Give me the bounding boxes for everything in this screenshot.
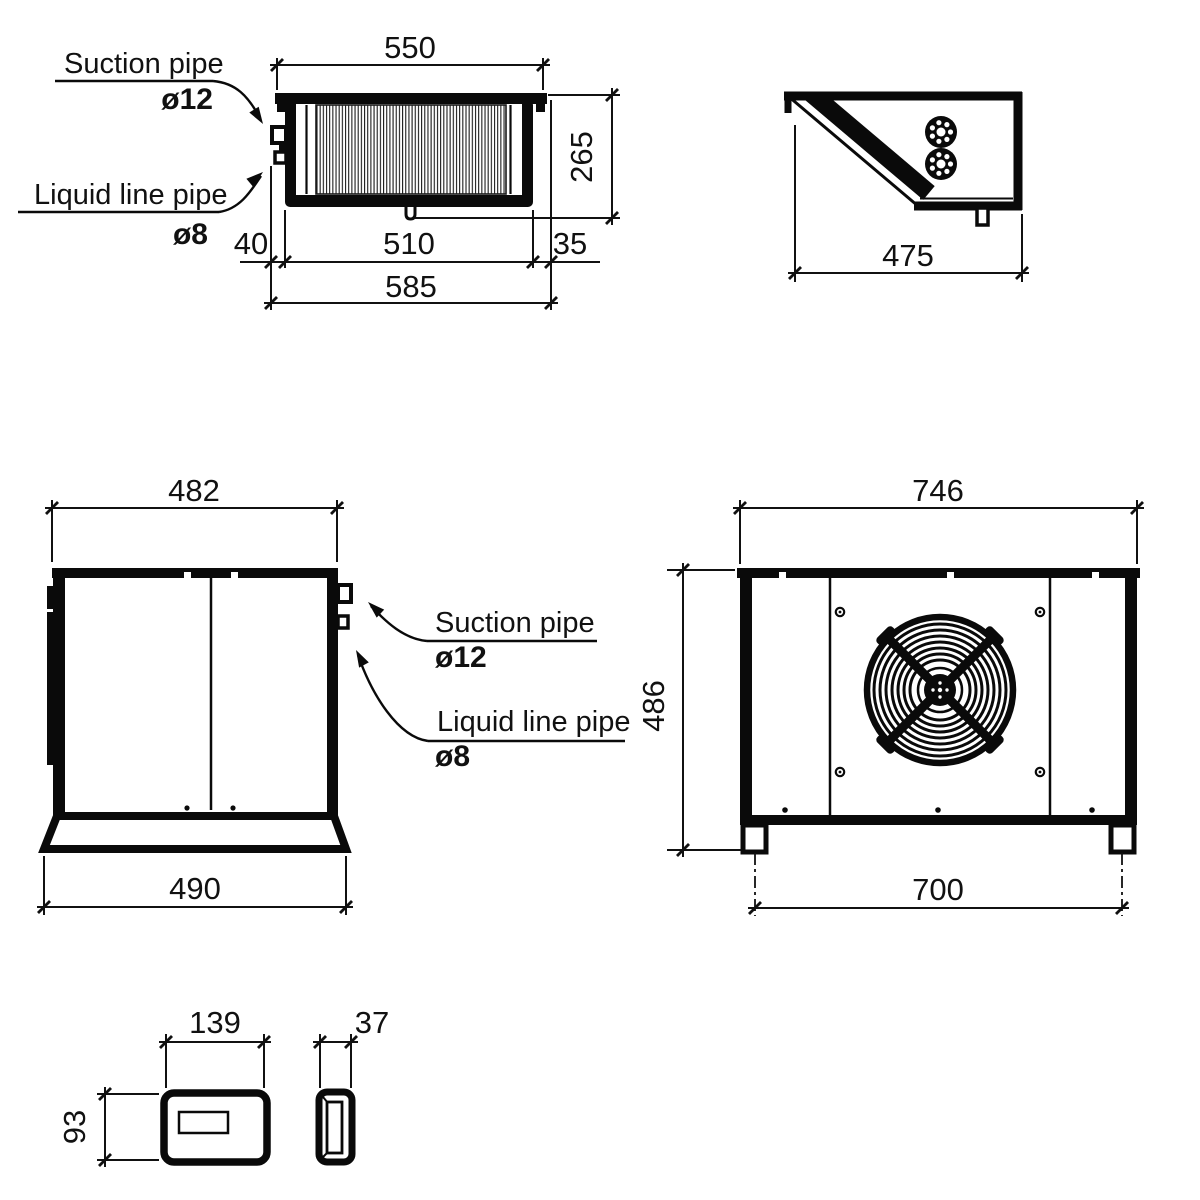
side-liquid-diameter: ø8	[435, 740, 470, 773]
dim-490-text: 490	[169, 871, 221, 906]
dim-front-746: 746	[733, 473, 1144, 564]
side-top-bar	[52, 568, 338, 578]
dim-40-text: 40	[234, 226, 268, 261]
dim-controller-93: 93	[57, 1087, 159, 1167]
condenser-fins	[316, 105, 506, 194]
side-suction-label: Suction pipe	[435, 607, 595, 639]
side-left-edge	[53, 578, 65, 818]
side-liquid-arrowhead-icon	[356, 650, 369, 668]
dim-37-text: 37	[355, 1005, 389, 1040]
side-suction-diameter: ø12	[435, 641, 487, 674]
dim-front-700: 700	[748, 853, 1129, 916]
liquid-arrowhead-icon	[246, 172, 263, 187]
liquid-pipe-stub	[275, 152, 286, 163]
side-screw-dot-1	[184, 805, 189, 810]
pipe-labels-top: Suction pipe ø12 Liquid line pipe ø8	[18, 48, 263, 251]
suction-pipe-label: Suction pipe	[64, 48, 224, 80]
dim-controller-37: 37	[313, 1005, 389, 1088]
side-right-edge	[327, 578, 338, 818]
controller-display-window	[179, 1112, 228, 1133]
dim-35-text: 35	[553, 226, 587, 261]
side-liquid-stub	[338, 616, 348, 628]
dim-746-text: 746	[912, 473, 964, 508]
dim-front-486: 486	[636, 563, 741, 857]
dim-486-text: 486	[636, 680, 671, 732]
side-suction-stub	[338, 585, 351, 602]
side-screw-dot-2	[230, 805, 235, 810]
front-top-bar	[737, 568, 1140, 578]
side-interior	[53, 578, 338, 815]
front-left-edge	[740, 578, 752, 825]
liquid-pipe-diameter: ø8	[173, 218, 208, 251]
drain-tab	[406, 207, 415, 219]
front-bar-notch-1	[779, 572, 786, 578]
dim-controller-139: 139	[159, 1005, 271, 1088]
controller-view: 139 37 93	[57, 1005, 389, 1167]
dim-475-text: 475	[882, 238, 934, 273]
dim-700-text: 700	[912, 872, 964, 907]
liquid-pipe-label: Liquid line pipe	[34, 179, 227, 211]
dim-585-text: 585	[385, 269, 437, 304]
dim-139-text: 139	[189, 1005, 241, 1040]
side-bar-notch-2	[231, 572, 238, 578]
angled-pipe-stub	[977, 208, 988, 225]
top-angled-view: 475	[784, 76, 1029, 282]
front-bottom-bar	[740, 815, 1137, 825]
front-bar-notch-3	[1092, 572, 1099, 578]
side-coil-strip-2	[47, 612, 53, 765]
front-foot-left	[743, 825, 766, 852]
controller-side-inner	[327, 1102, 342, 1153]
grommet-bottom-icon	[925, 148, 957, 180]
front-foot-right	[1111, 825, 1134, 852]
top-view-left-lip	[277, 104, 286, 112]
top-view-right-lip	[536, 104, 545, 112]
suction-pipe-diameter: ø12	[161, 83, 213, 116]
top-view: 550 265 40 510 35	[18, 30, 620, 310]
dim-265-text: 265	[564, 131, 599, 183]
grommet-top-icon	[925, 116, 957, 148]
side-coil-strip-1	[47, 586, 53, 609]
top-view-top-bar	[275, 93, 547, 104]
suction-pipe-stub	[272, 127, 286, 143]
dim-93-text: 93	[57, 1110, 92, 1144]
side-liquid-leader	[358, 655, 428, 741]
front-view: 746 486 700	[636, 473, 1144, 916]
dim-side-482: 482	[45, 473, 344, 562]
side-bar-notch-1	[184, 572, 191, 578]
dim-top-585: 585	[264, 269, 558, 309]
front-bar-notch-2	[947, 572, 954, 578]
technical-drawing-page: 550 265 40 510 35	[0, 0, 1200, 1200]
condensing-unit-drawing: 550 265 40 510 35	[0, 0, 1200, 1200]
dim-top-550: 550	[270, 30, 550, 90]
suction-arrowhead-icon	[249, 107, 263, 124]
dim-482-text: 482	[168, 473, 220, 508]
dim-side-490: 490	[37, 856, 353, 915]
side-base-skirt	[44, 816, 346, 849]
side-view: 482 490 Suction pipe ø12 Liquid line pip…	[37, 473, 630, 915]
side-liquid-label: Liquid line pipe	[437, 706, 630, 738]
pipe-labels-side: Suction pipe ø12 Liquid line pipe ø8	[356, 602, 630, 773]
front-right-edge	[1125, 578, 1137, 825]
dim-510-text: 510	[383, 226, 435, 261]
dim-550-text: 550	[384, 30, 436, 65]
